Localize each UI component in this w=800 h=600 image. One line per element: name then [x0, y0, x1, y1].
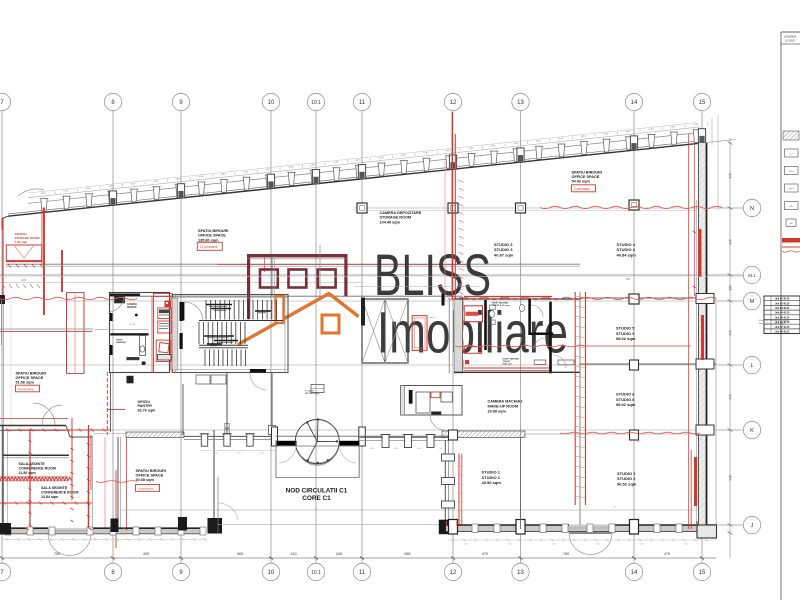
svg-text:SPATIU BIROURI: SPATIU BIROURI: [16, 372, 46, 376]
svg-text:12: 12: [450, 100, 457, 106]
svg-text:CAMERA DEPOZITARE: CAMERA DEPOZITARE: [380, 211, 422, 215]
svg-text:12 persoane: 12 persoane: [200, 245, 218, 249]
svg-text:4 persoane: 4 persoane: [138, 487, 154, 491]
svg-text:240: 240: [336, 552, 342, 556]
svg-text:Unit 02 40.25: Unit 02 40.25: [775, 302, 790, 305]
svg-text:565: 565: [626, 278, 631, 281]
svg-text:10: 10: [268, 570, 275, 576]
svg-text:780: 780: [563, 552, 569, 556]
svg-text:OFFICE SPACE: OFFICE SPACE: [198, 234, 226, 238]
svg-text:STUDIO 6: STUDIO 6: [616, 392, 635, 397]
svg-text:4.50 sqm: 4.50 sqm: [503, 363, 512, 366]
svg-text:STORAGE ROOM: STORAGE ROOM: [380, 216, 412, 220]
svg-text:Clasa de importanta a cladirii: Clasa de importanta a cladirii: [759, 319, 790, 322]
svg-text:30.08 sqm: 30.08 sqm: [136, 478, 155, 482]
svg-text:470: 470: [729, 330, 733, 336]
svg-text:MAKE-UP ROOM: MAKE-UP ROOM: [488, 405, 519, 409]
svg-text:N: N: [750, 206, 754, 212]
svg-text:10.1: 10.1: [311, 100, 321, 106]
svg-text:STUDIO 1: STUDIO 1: [482, 475, 501, 480]
svg-text:xx xx: xx xx: [430, 317, 435, 319]
svg-text:405: 405: [143, 552, 149, 556]
svg-text:OFFICE SPACE: OFFICE SPACE: [572, 175, 600, 179]
svg-text:13.84 sqm: 13.84 sqm: [41, 495, 58, 499]
svg-text:GSP7: GSP7: [788, 189, 795, 191]
svg-text:10: 10: [268, 100, 275, 106]
svg-text:240: 240: [291, 552, 297, 556]
svg-text:Unit 01 40.25: Unit 01 40.25: [775, 298, 790, 301]
svg-text:25.03: 25.03: [130, 324, 136, 326]
svg-text:GRUP: GRUP: [116, 340, 123, 342]
svg-text:13: 13: [517, 100, 524, 106]
svg-text:98.02 sqm: 98.02 sqm: [616, 402, 636, 407]
svg-text:STUDIO 4: STUDIO 4: [617, 242, 636, 247]
svg-text:96.52 sqm: 96.52 sqm: [617, 481, 637, 486]
svg-text:470: 470: [729, 173, 733, 179]
svg-text:470: 470: [729, 239, 733, 245]
svg-text:51.56 sqm: 51.56 sqm: [16, 381, 35, 385]
svg-text:SALA SEDINTE: SALA SEDINTE: [41, 486, 68, 490]
svg-text:CONFERENCE ROOM: CONFERENCE ROOM: [41, 490, 78, 494]
svg-text:GRUP SANITAR: GRUP SANITAR: [503, 358, 520, 361]
svg-text:STUDIO 2: STUDIO 2: [617, 471, 636, 476]
svg-text:26.76 sqm: 26.76 sqm: [138, 409, 157, 413]
svg-text:SANITAR: SANITAR: [116, 341, 126, 344]
svg-text:9 persoane: 9 persoane: [18, 387, 34, 391]
svg-text:M.1: M.1: [748, 273, 756, 278]
svg-text:OFICIU: OFICIU: [138, 400, 151, 404]
svg-text:40.50 sqm: 40.50 sqm: [482, 480, 502, 485]
svg-text:SPATIU BIROURI: SPATIU BIROURI: [136, 469, 166, 473]
svg-text:135.80 sqm: 135.80 sqm: [198, 238, 219, 242]
svg-text:104.40 sqm: 104.40 sqm: [380, 220, 401, 224]
svg-text:470: 470: [664, 552, 670, 556]
svg-text:565: 565: [405, 552, 411, 556]
svg-text:700: 700: [54, 552, 60, 556]
svg-text:L: L: [750, 363, 753, 369]
svg-text:1285: 1285: [21, 279, 27, 282]
svg-text:GSP1: GSP1: [788, 171, 795, 173]
svg-text:Unit 07 40.25: Unit 07 40.25: [775, 326, 790, 329]
svg-text:SPATIU BIROURI: SPATIU BIROURI: [198, 229, 228, 233]
svg-text:SALA SEDINTE: SALA SEDINTE: [19, 462, 46, 466]
svg-text:40.84 sqm: 40.84 sqm: [617, 252, 637, 257]
svg-text:14: 14: [631, 570, 638, 576]
svg-text:CO: CO: [789, 154, 793, 156]
svg-text:OFFICE SPACE: OFFICE SPACE: [16, 376, 44, 380]
svg-text:15: 15: [699, 100, 706, 106]
svg-text:13: 13: [517, 570, 524, 576]
svg-text:470: 470: [482, 552, 488, 556]
svg-text:K: K: [750, 428, 754, 434]
svg-text:M: M: [750, 299, 755, 305]
svg-text:565: 565: [237, 552, 243, 556]
svg-text:11.50 sqm: 11.50 sqm: [19, 471, 36, 475]
svg-text:40.87 sqm: 40.87 sqm: [494, 252, 514, 257]
svg-text:SPATIU BIROURI: SPATIU BIROURI: [572, 171, 602, 175]
svg-text:PANTRY: PANTRY: [138, 404, 153, 408]
svg-text:Unit 08 40.25: Unit 08 40.25: [775, 331, 790, 334]
svg-text:BLISS: BLISS: [374, 243, 491, 308]
svg-text:categoria de importanta C: categoria de importanta C: [759, 322, 786, 325]
svg-text:54.42 sqm: 54.42 sqm: [572, 180, 591, 184]
svg-text:OFFICE SPACE: OFFICE SPACE: [136, 474, 164, 478]
svg-text:TOILET 4.50 sqm: TOILET 4.50 sqm: [492, 304, 510, 307]
svg-text:CONFERENCE ROOM: CONFERENCE ROOM: [19, 466, 56, 470]
svg-text:12: 12: [450, 570, 457, 576]
svg-text:J: J: [751, 523, 754, 529]
svg-text:20.98 sqm: 20.98 sqm: [488, 410, 507, 414]
svg-text:Unit 03 40.25: Unit 03 40.25: [775, 307, 790, 310]
svg-text:GRUP SANITAR: GRUP SANITAR: [492, 302, 509, 305]
svg-text:185: 185: [729, 285, 733, 291]
svg-text:11: 11: [359, 100, 366, 106]
svg-text:7.35 sqm: 7.35 sqm: [15, 240, 28, 244]
svg-text:STUDIO 3: STUDIO 3: [494, 247, 513, 252]
svg-text:470: 470: [729, 394, 733, 400]
svg-text:Unit 04 40.25: Unit 04 40.25: [775, 312, 790, 315]
svg-text:STUDIO 4: STUDIO 4: [617, 247, 636, 252]
svg-text:CAMERA: CAMERA: [127, 303, 137, 306]
svg-text:CORE C1: CORE C1: [302, 495, 331, 502]
svg-text:940: 940: [729, 475, 733, 481]
svg-text:STUDIO 6: STUDIO 6: [616, 397, 635, 402]
svg-text:STUDIO 5: STUDIO 5: [616, 331, 635, 336]
svg-text:15: 15: [699, 570, 706, 576]
svg-text:2 persoane: 2 persoane: [574, 187, 590, 191]
svg-text:14: 14: [631, 100, 638, 106]
svg-text:STUDIO 5: STUDIO 5: [616, 326, 635, 331]
svg-text:CAMERA MACHIAJ: CAMERA MACHIAJ: [488, 400, 523, 404]
svg-text:11: 11: [359, 570, 366, 576]
svg-text:SERVER: SERVER: [127, 307, 137, 309]
svg-text:98.02 sqm: 98.02 sqm: [616, 336, 636, 341]
svg-text:Unit 05 40.25: Unit 05 40.25: [775, 316, 790, 319]
svg-text:STUDIO 2: STUDIO 2: [617, 476, 636, 481]
svg-text:LEGEND: LEGEND: [785, 40, 795, 43]
svg-text:LEGENDA: LEGENDA: [784, 35, 797, 39]
svg-text:10.1: 10.1: [311, 570, 321, 576]
svg-text:STUDIO 1: STUDIO 1: [482, 470, 501, 475]
svg-text:STUDIO 3: STUDIO 3: [494, 242, 513, 247]
svg-text:NOD CIRCULATII C1: NOD CIRCULATII C1: [286, 488, 348, 495]
